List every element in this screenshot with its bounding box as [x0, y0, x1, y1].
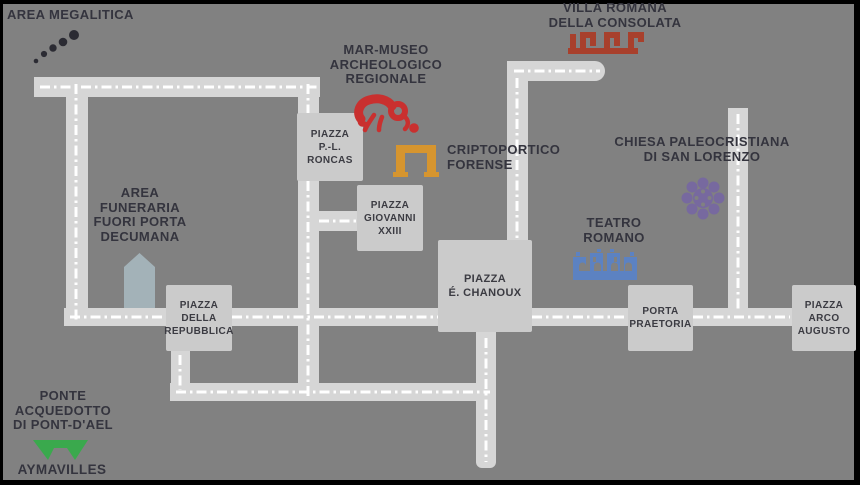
villa-romana-label: VILLA ROMANA DELLA CONSOLATA [535, 1, 695, 30]
theatre-icon [573, 249, 637, 280]
bridge-icon [33, 440, 89, 461]
piazza-giovanni-block: PIAZZA GIOVANNI XXIII [357, 185, 423, 251]
aosta-map: PIAZZA P.-L. RONCAS PIAZZA GIOVANNI XXII… [0, 0, 860, 485]
piazza-repubblica-label-line: DELLA [181, 312, 216, 325]
criptoportico-label: CRIPTOPORTICO FORENSE [447, 143, 577, 172]
aymavilles-label: AYMAVILLES [14, 462, 110, 477]
area-megalitica-label: AREA MEGALITICA [7, 8, 157, 23]
piazza-chanoux-label-line: PIAZZA [464, 272, 506, 286]
chiesa-san-lorenzo-label: CHIESA PALEOCRISTIANA DI SAN LORENZO [612, 135, 792, 164]
piazza-repubblica-label-line: PIAZZA [180, 299, 219, 312]
piazza-repubblica-label-line: REPUBBLICA [164, 325, 234, 338]
piazza-arco-augusto-label-line: PIAZZA [805, 299, 844, 312]
piazza-giovanni-label-line: GIOVANNI [364, 212, 416, 225]
porta-praetoria-block: PORTA PRAETORIA [628, 285, 693, 351]
piazza-giovanni-label-line: XXIII [378, 225, 402, 238]
mausoleum-icon [124, 253, 155, 308]
rosette-icon [681, 176, 725, 222]
megaliths-icon [30, 28, 82, 66]
porta-praetoria-label-line: PORTA [642, 305, 678, 318]
piazza-arco-augusto-label-line: AUGUSTO [798, 325, 851, 338]
piazza-chanoux-label-line: É. CHANOUX [448, 286, 521, 300]
piazza-arco-augusto-block: PIAZZA ARCO AUGUSTO [792, 285, 856, 351]
piazza-roncas-label-line: PIAZZA [311, 128, 350, 141]
teatro-romano-label: TEATRO ROMANO [572, 216, 656, 245]
ponte-acquedotto-label: PONTE ACQUEDOTTO DI PONT-D'AEL [10, 389, 116, 433]
horse-icon [352, 92, 424, 134]
piazza-arco-augusto-label-line: ARCO [808, 312, 839, 325]
meander-icon [566, 30, 650, 56]
arch-icon [392, 141, 440, 178]
piazza-repubblica-block: PIAZZA DELLA REPUBBLICA [166, 285, 232, 351]
area-funeraria-label: AREA FUNERARIA FUORI PORTA DECUMANA [88, 186, 192, 245]
piazza-chanoux-block: PIAZZA É. CHANOUX [438, 240, 532, 332]
mar-museo-label: MAR-MUSEO ARCHEOLOGICO REGIONALE [316, 43, 456, 87]
piazza-roncas-label-line: P.-L. RONCAS [297, 141, 363, 167]
piazza-giovanni-label-line: PIAZZA [371, 199, 410, 212]
porta-praetoria-label-line: PRAETORIA [629, 318, 691, 331]
